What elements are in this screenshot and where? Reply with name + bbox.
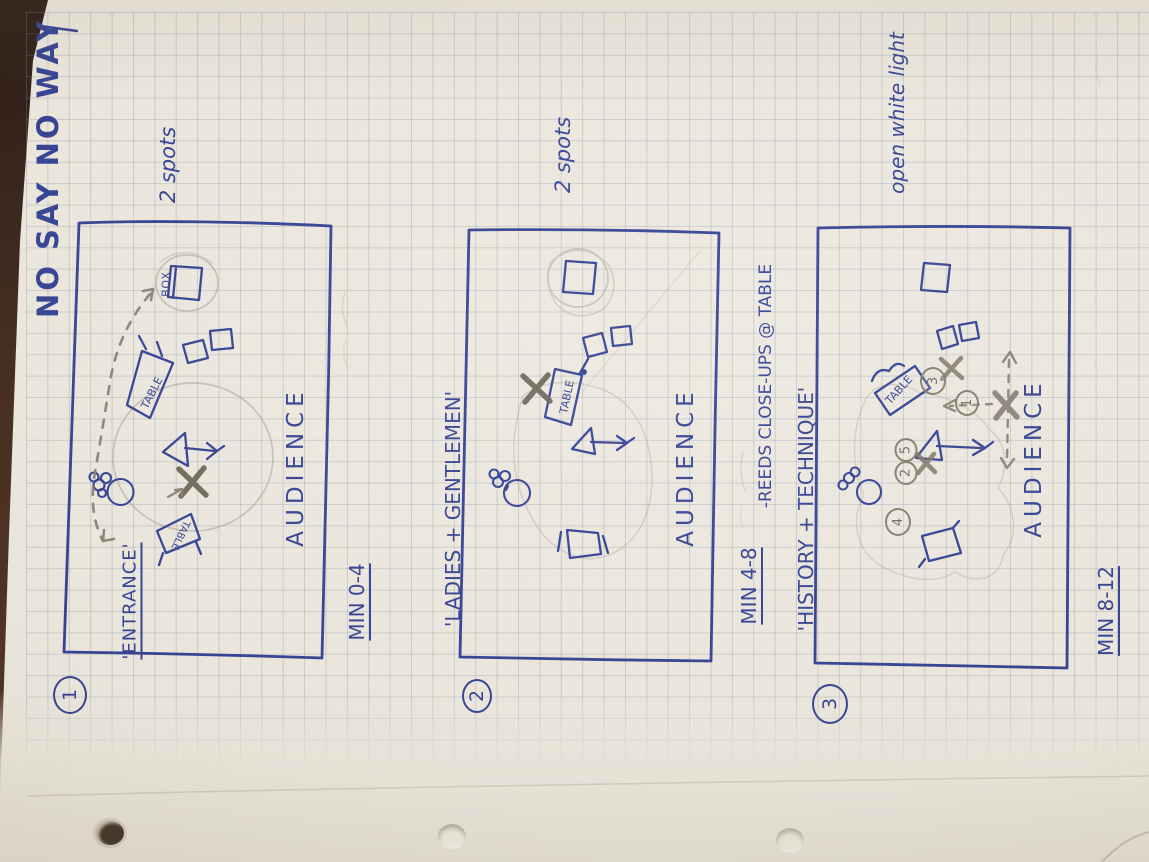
music-stand-icon: [916, 431, 993, 460]
stage-2-pencil-marks: [514, 249, 699, 559]
stage-3-time-label: MIN 8-12: [1094, 566, 1118, 656]
stage-1-spots-label: 2 spots: [156, 127, 180, 203]
stool-prop: [937, 326, 958, 349]
pencil-area-outline: [855, 385, 1014, 580]
path-arrowhead: [103, 530, 114, 541]
performer-with-flowers-marker: [839, 468, 882, 505]
stage-2-spots-label: 2 spots: [551, 117, 575, 193]
stage-1-time-label: MIN 0-4: [345, 563, 369, 640]
hole-punch: [438, 824, 466, 849]
stage-2-audience-label: AUDIENCE: [673, 387, 699, 546]
stage-1-scene-number: 1: [53, 676, 87, 714]
under-sheet-edge: [28, 776, 1149, 796]
spotlight-circle: [113, 383, 273, 531]
stage-2-time-label: MIN 4-8: [737, 547, 761, 624]
stool-prop: [959, 322, 979, 341]
stage-3-lighting-label: open white light: [885, 32, 909, 194]
stage-1-pencil-marks: [113, 253, 273, 531]
stage-3-scene-number: 3: [812, 684, 848, 724]
path-arrowhead: [1001, 458, 1014, 468]
position-marker-3: 3: [920, 367, 946, 395]
stage-1-audience-label: AUDIENCE: [283, 387, 309, 546]
stage-3-scene-title: 'HISTORY + TECHNIQUE': [794, 387, 818, 632]
box-spot-circle-2: [548, 250, 614, 316]
bench-prop: [558, 530, 608, 558]
position-marker-1: 1: [955, 390, 979, 416]
table-corner-dot: [582, 370, 586, 374]
stage-2-scene-title: 'LADIES + GENTLEMEN': [441, 391, 465, 627]
stage-3-audience-label: AUDIENCE: [1021, 378, 1047, 537]
stage-1-entrance-label: 'ENTRANCE': [120, 542, 141, 659]
blocking-path-dashed: [93, 289, 182, 541]
stool-prop: [183, 340, 208, 363]
music-stand-icon: [572, 428, 634, 454]
pencil-sightline: [583, 252, 699, 391]
bench-prop: [919, 521, 961, 567]
page-title: NO SAY NO WAY: [31, 18, 65, 318]
box-prop: [168, 266, 202, 300]
stool-prop: [583, 333, 607, 357]
page-curl: [1102, 832, 1149, 862]
box-prop: [921, 263, 950, 292]
photographed-sketch-page: NO SAY NO WAY 2 spots 'ENTRANCE' AUDIENC…: [0, 0, 1149, 862]
position-marker-2: 2: [895, 461, 918, 485]
stage-2-scene-number: 2: [462, 679, 492, 713]
hole-punch: [96, 821, 124, 845]
stool-prop: [210, 329, 233, 350]
position-marker-5: 5: [895, 438, 918, 462]
box-prop-label: BOX: [160, 271, 173, 297]
stage-2-time-note: -REEDS CLOSE-UPS @ TABLE: [756, 264, 776, 508]
box-prop: [563, 261, 596, 294]
x-position-mark: [523, 375, 550, 402]
position-marker-4: 4: [885, 508, 911, 536]
music-stand-icon: [163, 433, 224, 466]
hole-punch: [776, 828, 804, 853]
